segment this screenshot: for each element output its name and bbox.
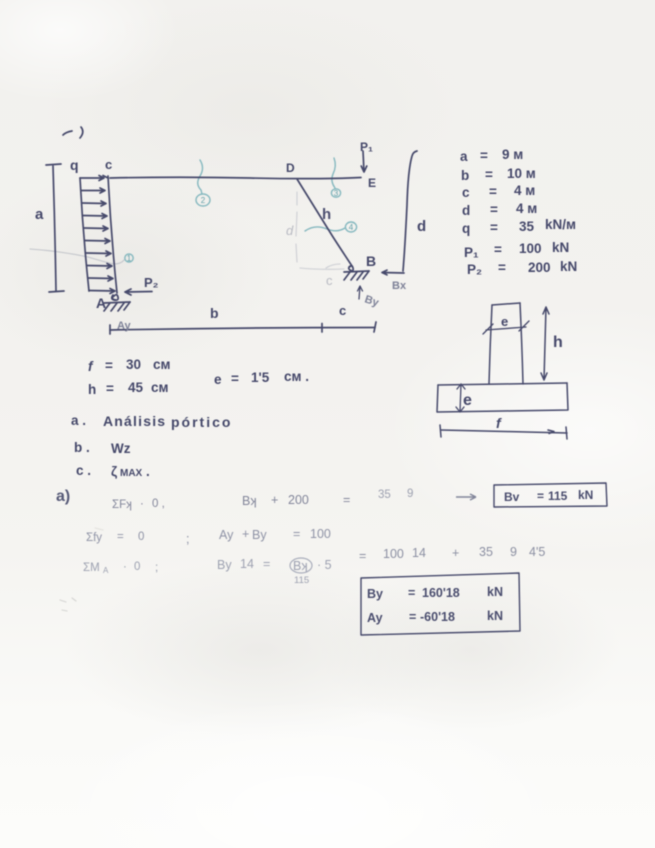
- svg-text:35: 35: [519, 219, 535, 234]
- svg-text:30: 30: [126, 357, 141, 372]
- svg-text:e: e: [214, 372, 222, 387]
- svg-text:Bʞ: Bʞ: [293, 559, 308, 573]
- svg-text:Bv: Bv: [504, 490, 520, 504]
- svg-text:e: e: [463, 392, 472, 409]
- svg-text:c: c: [462, 185, 470, 200]
- svg-text:c: c: [339, 303, 346, 318]
- svg-text:14: 14: [240, 557, 254, 571]
- svg-text:Análisis: Análisis: [103, 413, 166, 429]
- svg-text:kN: kN: [552, 240, 569, 255]
- svg-text:Ay: Ay: [367, 611, 383, 625]
- svg-text:b .: b .: [74, 440, 90, 455]
- svg-text:4 м: 4 м: [514, 183, 535, 198]
- svg-text:B: B: [366, 253, 376, 269]
- svg-text:kN: kN: [487, 585, 503, 599]
- svg-text:P₂: P₂: [467, 262, 482, 277]
- svg-text:a: a: [460, 149, 468, 164]
- svg-text:=: =: [480, 148, 488, 163]
- svg-text:Wz: Wz: [111, 441, 131, 456]
- svg-text:100: 100: [519, 241, 542, 256]
- svg-text:=: =: [263, 557, 270, 571]
- svg-text:4: 4: [349, 223, 354, 232]
- svg-text:+: +: [271, 493, 278, 507]
- svg-text:-60'18: -60'18: [420, 610, 455, 624]
- svg-text:P₂: P₂: [144, 275, 159, 290]
- svg-text:=: =: [409, 610, 416, 624]
- svg-text:200: 200: [288, 493, 309, 507]
- svg-text:=: =: [489, 184, 497, 199]
- svg-text:cм: cм: [153, 357, 171, 372]
- svg-text:.: .: [146, 464, 150, 479]
- svg-text:=: =: [293, 527, 300, 541]
- svg-text:a: a: [35, 206, 44, 223]
- svg-text:kN: kN: [560, 259, 577, 274]
- svg-text:D: D: [286, 161, 295, 175]
- svg-text:f: f: [88, 359, 94, 374]
- svg-text:=: =: [105, 358, 113, 373]
- svg-text:c .: c .: [76, 463, 91, 478]
- svg-text:d: d: [417, 218, 426, 235]
- svg-text:35: 35: [479, 545, 493, 559]
- svg-text:10 м: 10 м: [507, 166, 536, 181]
- svg-text:45: 45: [128, 380, 144, 395]
- svg-text:P₁: P₁: [464, 245, 479, 260]
- svg-text:By: By: [363, 293, 381, 309]
- svg-text:q: q: [462, 221, 470, 236]
- svg-text:MAX: MAX: [120, 468, 143, 479]
- svg-text:q: q: [70, 157, 79, 173]
- svg-text:kN: kN: [578, 488, 593, 502]
- svg-text:Bx: Bx: [392, 280, 407, 292]
- svg-text:4 м: 4 м: [516, 201, 537, 216]
- svg-text:;: ;: [186, 532, 189, 546]
- svg-text:a .: a .: [71, 413, 86, 428]
- svg-text:cм .: cм .: [284, 369, 309, 384]
- svg-text:kN/м: kN/м: [545, 217, 576, 232]
- svg-text:=: =: [490, 220, 498, 235]
- svg-text:9: 9: [510, 545, 517, 559]
- svg-text:100: 100: [310, 527, 331, 541]
- svg-text:By: By: [367, 587, 383, 601]
- svg-text:=: =: [343, 493, 350, 507]
- svg-text:d: d: [462, 203, 470, 218]
- svg-text:c: c: [326, 273, 333, 288]
- svg-text:35: 35: [378, 489, 391, 501]
- svg-text:115: 115: [294, 575, 309, 586]
- svg-text:2: 2: [201, 196, 206, 205]
- svg-text:;: ;: [155, 562, 158, 574]
- svg-text:h: h: [322, 206, 331, 223]
- svg-text:3: 3: [334, 189, 339, 198]
- svg-text:Σfy: Σfy: [86, 532, 102, 544]
- svg-text:h: h: [553, 334, 563, 351]
- svg-text:c: c: [105, 157, 112, 172]
- svg-text:=: =: [359, 549, 366, 563]
- svg-text:ΣM: ΣM: [83, 562, 100, 574]
- svg-text:Ay: Ay: [219, 528, 234, 542]
- svg-text:9 м: 9 м: [502, 147, 523, 162]
- svg-text:4'5: 4'5: [529, 545, 545, 559]
- svg-text:=: =: [485, 167, 493, 182]
- svg-text:P₁: P₁: [360, 140, 373, 154]
- svg-text:pórtico: pórtico: [171, 414, 232, 430]
- svg-text:By: By: [252, 528, 267, 542]
- svg-text:A: A: [96, 295, 106, 311]
- svg-text:ζ: ζ: [111, 464, 117, 479]
- svg-text:f: f: [496, 415, 502, 431]
- svg-text:A: A: [103, 566, 109, 575]
- svg-text:h: h: [88, 382, 96, 397]
- svg-text:100: 100: [383, 547, 404, 561]
- svg-text:=: =: [106, 381, 114, 396]
- svg-text:a): a): [56, 488, 70, 505]
- svg-text:b: b: [210, 305, 219, 321]
- svg-text:14: 14: [412, 546, 426, 560]
- svg-text:=: =: [494, 242, 502, 257]
- svg-text:cм: cм: [151, 380, 169, 395]
- svg-text:=: =: [537, 489, 544, 503]
- svg-text:1: 1: [127, 254, 132, 263]
- svg-text:Bʞ: Bʞ: [242, 494, 257, 508]
- svg-text:0 ,: 0 ,: [152, 498, 165, 510]
- svg-text:=: =: [490, 202, 498, 217]
- svg-text:+: +: [242, 527, 249, 541]
- svg-text:=: =: [231, 371, 239, 386]
- svg-text:0: 0: [134, 561, 140, 573]
- svg-text:=: =: [117, 531, 124, 543]
- svg-text:·: ·: [123, 561, 127, 573]
- svg-text:d: d: [286, 223, 294, 238]
- svg-text:b: b: [461, 168, 469, 183]
- svg-text:·: ·: [140, 498, 144, 510]
- svg-text:E: E: [368, 176, 376, 190]
- svg-text:115: 115: [548, 489, 568, 503]
- svg-text:160'18: 160'18: [422, 586, 460, 600]
- svg-text:=: =: [498, 260, 506, 275]
- svg-text:· 5: · 5: [317, 558, 332, 572]
- svg-text:e: e: [501, 314, 508, 329]
- svg-text:Ay: Ay: [117, 320, 132, 332]
- svg-text:By: By: [217, 558, 232, 572]
- svg-text:kN: kN: [487, 609, 503, 623]
- svg-text:0: 0: [138, 531, 144, 543]
- svg-text:=: =: [408, 586, 415, 600]
- svg-text:9: 9: [407, 488, 413, 500]
- svg-text:1'5: 1'5: [251, 370, 270, 385]
- svg-text:ΣFʞ: ΣFʞ: [112, 499, 132, 511]
- svg-text:200: 200: [528, 260, 551, 275]
- svg-text:+: +: [452, 546, 459, 560]
